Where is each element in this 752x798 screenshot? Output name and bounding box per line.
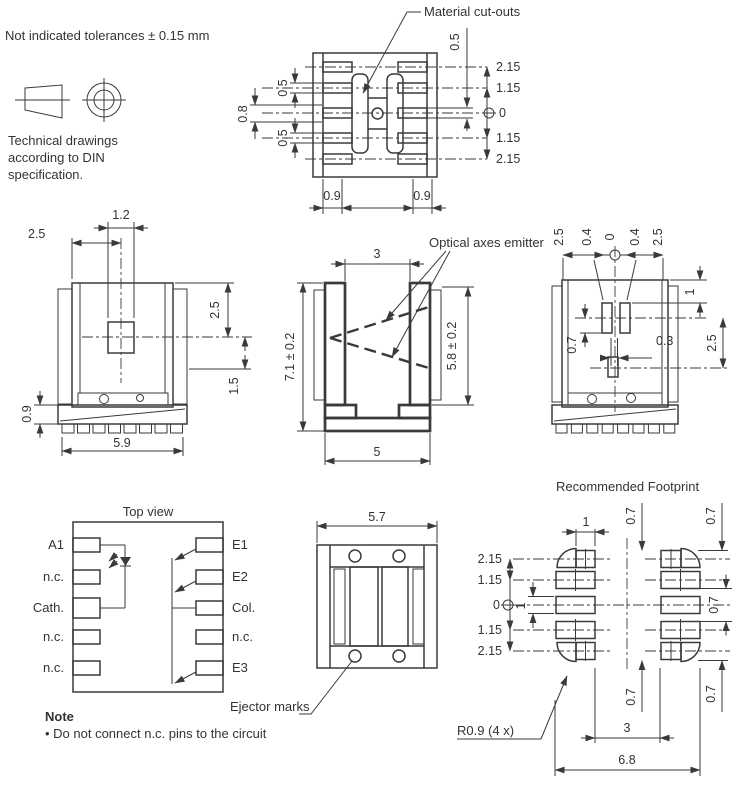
fp-row-4: 2.15 xyxy=(478,644,502,658)
dim-base-height: 0.9 xyxy=(20,405,34,422)
dim-window-width: 1.2 xyxy=(112,208,129,222)
fp-total-width: 6.8 xyxy=(618,753,635,767)
pin-label-a1: A1 xyxy=(48,537,64,552)
dim-sensor-gap: 0.7 xyxy=(565,336,579,353)
pin-label-col: Col. xyxy=(232,600,255,615)
fp-clearance-top-right: 0.7 xyxy=(704,507,718,524)
footprint-drawing: Recommended Footprint xyxy=(457,479,732,776)
ejector-marks-callout: Ejector marks xyxy=(230,699,310,714)
pin-label-nc2: n.c. xyxy=(43,629,64,644)
drawing-canvas: Not indicated tolerances ± 0.15 mm Techn… xyxy=(0,0,752,793)
dim-top-3: 0.4 xyxy=(628,228,642,245)
din-note-line3: specification. xyxy=(8,167,83,182)
fp-clearance-bottom-right: 0.7 xyxy=(704,685,718,702)
fp-clearance-top: 0.7 xyxy=(624,507,638,524)
dim-inner-height: 5.8 ± 0.2 xyxy=(445,322,459,371)
dim-slot-gap: 0.3 xyxy=(656,334,673,348)
footprint-title: Recommended Footprint xyxy=(556,479,699,494)
package-top-drawing: 5.7 xyxy=(317,510,437,668)
dim-window-offset: 2.5 xyxy=(28,227,45,241)
header-block: Not indicated tolerances ± 0.15 mm Techn… xyxy=(5,28,209,182)
dim-top-2: 0 xyxy=(603,233,617,240)
dim-pad-left: 0.9 xyxy=(323,189,340,203)
optical-axes-callout: Optical axes emitter xyxy=(429,235,545,250)
dim-body-width: 5.9 xyxy=(113,436,130,450)
fp-row-3: 1.15 xyxy=(478,623,502,637)
pin-label-cath: Cath. xyxy=(33,600,64,615)
dim-pin-width-top: 0.5 xyxy=(276,79,290,96)
dim-slot-width: 3 xyxy=(374,247,381,261)
fp-pad-height: 1 xyxy=(514,602,528,609)
note-title: Note xyxy=(45,709,74,724)
dim-top-4: 2.5 xyxy=(651,228,665,245)
pin-label-nc3: n.c. xyxy=(43,660,64,675)
dim-top-1: 0.4 xyxy=(580,228,594,245)
dim-top-0: 2.5 xyxy=(552,228,566,245)
dim-center-from-top: 2.5 xyxy=(208,301,222,318)
dim-row-2: 0 xyxy=(499,106,506,120)
rear-view-drawing: 2.5 0.4 0 0.4 2.5 1 2.5 0.7 0.3 xyxy=(552,228,730,433)
note-item: • Do not connect n.c. pins to the circui… xyxy=(45,726,267,741)
din-note-line2: according to DIN xyxy=(8,150,105,165)
radius-callout: R0.9 (4 x) xyxy=(457,723,514,738)
fp-pad-width: 1 xyxy=(583,515,590,529)
dim-package-width: 5.7 xyxy=(368,510,385,524)
dim-base-width: 5 xyxy=(374,445,381,459)
pinout-diagram: Top view A1 n.c. Cath. n.c. n.c. E1 E2 C… xyxy=(33,504,352,714)
pin-label-e2: E2 xyxy=(232,569,248,584)
dim-pin-width-bottom: 0.5 xyxy=(276,129,290,146)
fp-row-2: 0 xyxy=(493,598,500,612)
technical-drawing-page: Not indicated tolerances ± 0.15 mm Techn… xyxy=(0,0,752,793)
dim-mark-offset: 1.5 xyxy=(227,377,241,394)
pin-label-e3: E3 xyxy=(232,660,248,675)
dim-row-4: 2.15 xyxy=(496,152,520,166)
phototransistor-symbol-icon xyxy=(172,549,196,684)
material-cutouts-callout: Material cut-outs xyxy=(424,4,521,19)
dim-row-1: 1.15 xyxy=(496,81,520,95)
pinout-title: Top view xyxy=(123,504,174,519)
dim-row-3: 1.15 xyxy=(496,131,520,145)
fp-gap: 3 xyxy=(624,721,631,735)
side-view-drawing: Optical axes emitter 3 7.1 ± 0.2 5.8 ± 0… xyxy=(283,235,545,465)
dim-height: 7.1 ± 0.2 xyxy=(283,333,297,382)
fp-clearance-bottom: 0.7 xyxy=(624,688,638,705)
tolerance-note: Not indicated tolerances ± 0.15 mm xyxy=(5,28,209,43)
pin-label-nc4: n.c. xyxy=(232,629,253,644)
din-note-line1: Technical drawings xyxy=(8,133,118,148)
projection-symbol-icon xyxy=(15,78,126,122)
pin-label-e1: E1 xyxy=(232,537,248,552)
led-symbol-icon xyxy=(100,545,131,608)
fp-row-0: 2.15 xyxy=(478,552,502,566)
dim-top-inset: 1 xyxy=(683,288,697,295)
front-view-drawing: 1.2 2.5 2.5 1.5 0.9 5.9 xyxy=(20,208,252,456)
dim-pin-gap: 0.8 xyxy=(236,105,250,122)
fp-row-1: 1.15 xyxy=(478,573,502,587)
dim-row-0: 2.15 xyxy=(496,60,520,74)
dim-pad-right: 0.9 xyxy=(413,189,430,203)
pin-label-nc1: n.c. xyxy=(43,569,64,584)
fp-clearance-mid: 0.7 xyxy=(707,596,721,613)
dim-sensor-offset: 2.5 xyxy=(705,334,719,351)
dim-center-slot: 0.5 xyxy=(448,33,462,50)
bottom-view-drawing: Material cut-outs 0.5 0.5 0.8 0.5 2.15 1… xyxy=(236,4,521,214)
